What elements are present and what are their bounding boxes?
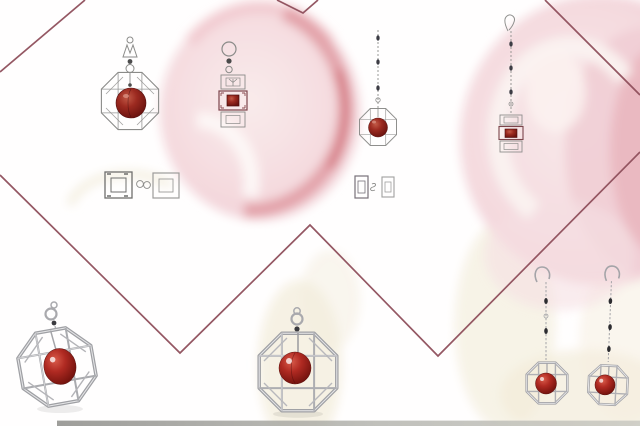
red-bead	[369, 118, 388, 137]
collage-canvas	[0, 0, 640, 426]
red-bead	[279, 352, 311, 384]
jewelry-collage	[0, 0, 640, 426]
pink-blob-left	[160, 4, 360, 220]
red-bead	[116, 88, 146, 118]
red-gem	[227, 95, 239, 106]
table-shadow-band	[57, 421, 640, 426]
red-gem	[505, 129, 517, 138]
red-bead	[536, 373, 557, 394]
